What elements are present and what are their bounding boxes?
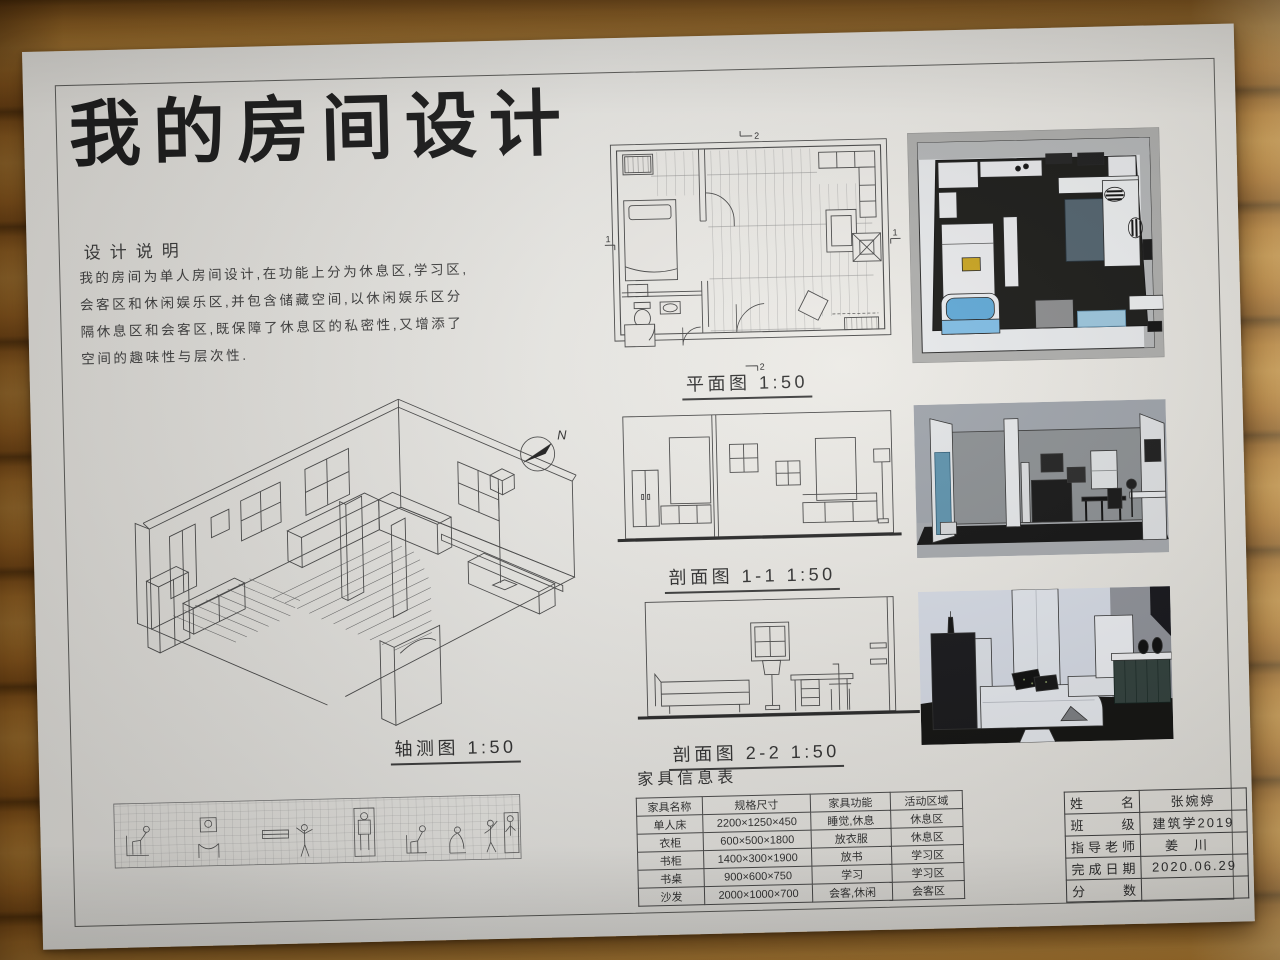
north-arrow-icon: N	[520, 427, 568, 471]
window-elevation	[729, 443, 800, 487]
cell: 学习区	[891, 845, 963, 865]
axonometric-drawing: N	[88, 381, 596, 745]
cell: 放衣服	[811, 828, 891, 848]
cell: 休息区	[891, 827, 963, 847]
blue-rug	[1077, 310, 1125, 327]
axonometric-label: 轴测图 1:50	[390, 732, 521, 765]
render-section-perspective	[914, 399, 1170, 558]
presentation-sheet: 我的房间设计 设计说明 我的房间为单人房间设计,在功能上分为休息区,学习区, 会…	[22, 23, 1255, 949]
right-cabinets	[441, 531, 563, 616]
window-elevation	[751, 622, 790, 661]
field-label: 指导老师	[1065, 834, 1140, 858]
field-value: 张婉婷	[1139, 788, 1246, 813]
floor-lamp	[490, 469, 517, 591]
field-label: 姓名	[1064, 790, 1139, 814]
curved-partition	[380, 625, 442, 725]
col-header: 活动区域	[890, 791, 962, 811]
floor-lamp-elevation	[763, 660, 782, 709]
section-1-1-drawing	[611, 400, 907, 559]
cell: 休息区	[891, 809, 963, 829]
ceiling-feature	[853, 233, 882, 262]
svg-text:2: 2	[754, 131, 759, 141]
lamp-elevation	[874, 449, 892, 523]
col-header: 家具功能	[810, 792, 890, 812]
sideboard	[182, 578, 245, 634]
cell: 会客区	[892, 881, 964, 901]
cell: 放书	[811, 846, 891, 866]
ergonomic-figure-strip	[112, 788, 526, 880]
cell: 学习区	[892, 863, 964, 883]
field-value: 2020.06.29	[1141, 854, 1248, 879]
desk-and-chair-elevation	[791, 664, 854, 711]
floor-plan-drawing: 2 2 1 1	[602, 124, 904, 377]
design-notes-heading: 设计说明	[83, 236, 188, 263]
corner-sofa	[287, 491, 453, 568]
nightstand	[628, 284, 648, 296]
sofa-elevation	[803, 493, 878, 523]
field-label: 完成日期	[1066, 856, 1141, 880]
bed	[624, 200, 678, 281]
bathroom	[622, 291, 703, 347]
black-tower	[931, 633, 977, 730]
cell: 单人床	[637, 815, 703, 835]
wardrobe-elevation	[632, 470, 659, 527]
render-top-view	[907, 127, 1164, 363]
section-2-2-drawing	[631, 584, 924, 739]
cell: 衣柜	[637, 833, 703, 853]
design-notes-paragraph: 我的房间为单人房间设计,在功能上分为休息区,学习区, 会客区和休闲娱乐区,并包含…	[79, 253, 567, 372]
render-interior-view	[918, 586, 1174, 745]
svg-text:1: 1	[892, 227, 897, 237]
north-label: N	[557, 427, 567, 442]
field-value: 姜川	[1140, 832, 1247, 857]
field-value	[1141, 876, 1248, 901]
wall-shelves	[870, 643, 886, 664]
cell: 会客,休闲	[812, 882, 892, 902]
room-walls	[132, 395, 579, 629]
furniture-table: 家具名称 规格尺寸 家具功能 活动区域 单人床 2200×1250×450 睡觉…	[636, 790, 965, 907]
title-block: 姓名 张婉婷 班级 建筑学2019 指导老师 姜川 完成日期 2020.06.2…	[1064, 787, 1250, 902]
cell: 2000×1000×700	[704, 884, 812, 905]
bathtub-render	[941, 293, 1000, 334]
col-header: 家具名称	[636, 797, 702, 817]
cell: 沙发	[638, 887, 704, 907]
cell: 书桌	[638, 869, 704, 889]
cell: 学习	[812, 864, 892, 884]
svg-text:1: 1	[605, 234, 610, 244]
bed-elevation	[655, 672, 750, 714]
furniture-table-heading: 家具信息表	[637, 763, 738, 789]
plan-label: 平面图 1:50	[682, 367, 813, 400]
page-title: 我的房间设计	[68, 84, 610, 176]
title-block-row: 分数	[1066, 876, 1248, 902]
yellow-painting	[962, 257, 980, 270]
field-value: 建筑学2019	[1140, 810, 1247, 835]
cell: 睡觉,休息	[811, 810, 891, 830]
cell: 书柜	[638, 851, 704, 871]
photo-of-design-board: 我的房间设计 设计说明 我的房间为单人房间设计,在功能上分为休息区,学习区, 会…	[0, 0, 1280, 960]
field-label: 分数	[1066, 878, 1141, 902]
field-label: 班级	[1065, 812, 1140, 836]
